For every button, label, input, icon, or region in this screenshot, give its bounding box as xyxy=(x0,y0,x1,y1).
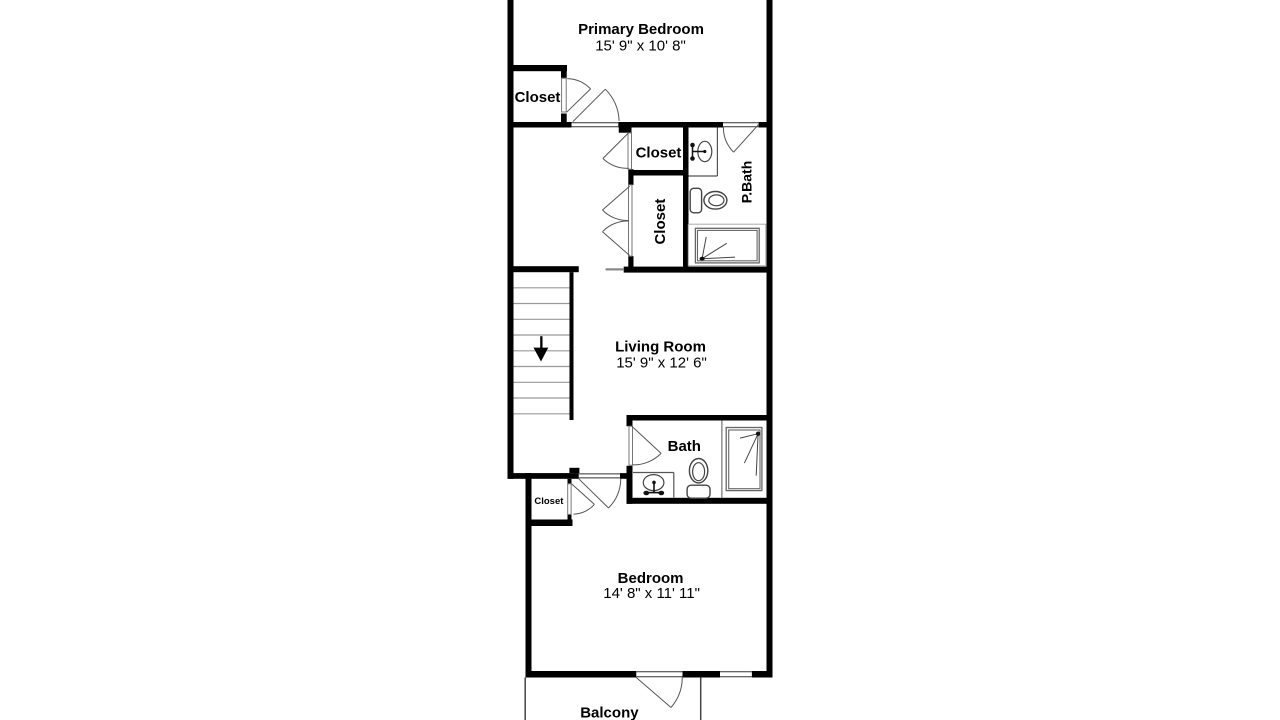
svg-text:Closet: Closet xyxy=(636,145,682,162)
svg-text:Balcony: Balcony xyxy=(580,705,639,720)
svg-text:15' 9" x 10' 8": 15' 9" x 10' 8" xyxy=(595,38,686,55)
svg-text:Closet: Closet xyxy=(652,199,669,245)
svg-text:Primary Bedroom: Primary Bedroom xyxy=(578,21,704,38)
svg-text:Closet: Closet xyxy=(515,89,561,106)
svg-text:Closet: Closet xyxy=(534,496,564,507)
svg-text:15' 9" x 12' 6": 15' 9" x 12' 6" xyxy=(616,355,707,372)
svg-text:Bath: Bath xyxy=(668,438,701,455)
svg-text:14' 8" x 11' 11": 14' 8" x 11' 11" xyxy=(603,585,700,602)
svg-text:Living Room: Living Room xyxy=(615,339,706,356)
svg-text:P.Bath: P.Bath xyxy=(739,161,755,204)
